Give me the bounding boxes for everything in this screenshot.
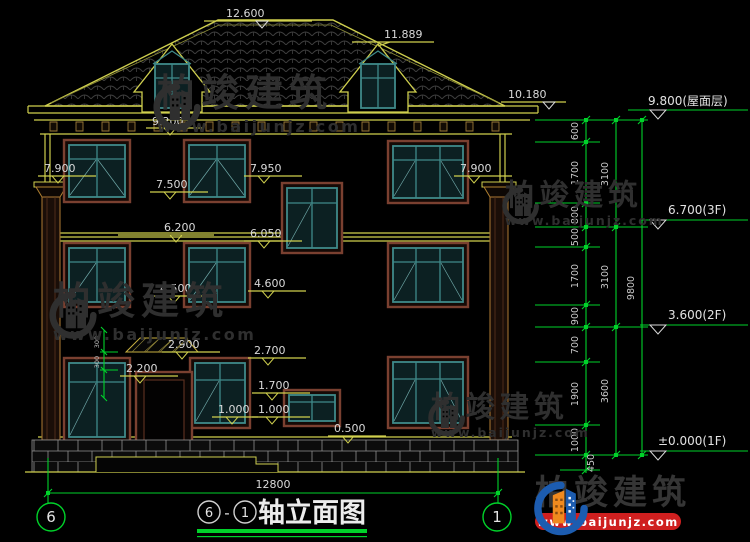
dim-label: 600: [570, 122, 581, 140]
dim-label: 3100: [600, 162, 611, 186]
right-dim-chain: 600 1700 800 500 1700 900 700 1900 1000 …: [535, 116, 648, 474]
dim-label: 1900: [570, 382, 581, 406]
axis-number: 6: [46, 508, 56, 526]
axis-number: 1: [492, 508, 502, 526]
dim-label: 1700: [570, 264, 581, 288]
window: [184, 243, 250, 307]
title-underline-thin: [197, 536, 367, 537]
dim-label: 1.700: [258, 379, 290, 392]
pilaster-right: [482, 182, 516, 440]
cornice-brackets: [50, 122, 499, 131]
dim-label: 11.889: [384, 28, 423, 41]
dim-label: 300: [93, 336, 101, 348]
dim-label: 800: [570, 206, 581, 224]
dim-label: 900: [570, 307, 581, 325]
level-flags: 9.800(屋面层) 6.700(3F) 3.600(2F) ±0.000(1F…: [628, 94, 748, 460]
dim-label: 12800: [256, 478, 291, 491]
stone-base: [25, 440, 525, 472]
dim-label: 1000: [570, 428, 581, 452]
dim-label: 7.900: [44, 162, 76, 175]
drawing-title: 6 - 1 轴立面图: [197, 497, 367, 537]
level-label: ±0.000(1F): [658, 434, 726, 448]
window: [64, 243, 130, 307]
level-label: 9.800(屋面层): [648, 94, 728, 108]
window: [284, 390, 340, 426]
dim-label: 300: [93, 356, 101, 368]
dim-label: 4.600: [254, 277, 286, 290]
window: [64, 358, 130, 442]
dim-label: 2.900: [168, 338, 200, 351]
dim-label: 3100: [600, 265, 611, 289]
title-separator: -: [224, 504, 229, 522]
window: [388, 243, 468, 307]
dim-label: 2.700: [254, 344, 286, 357]
dim-label: 7.500: [156, 178, 188, 191]
window: [388, 357, 468, 428]
window: [282, 183, 342, 253]
roof: [28, 20, 538, 134]
level-label: 3.600(2F): [668, 308, 726, 322]
dim-label: 450: [586, 454, 597, 472]
dim-label: 1700: [570, 161, 581, 185]
brand-block: 柏竣建筑 www.baijunjz.com: [528, 476, 691, 530]
dim-label: 1.000: [258, 403, 290, 416]
elevation-drawing: 12.600 11.889 10.180 9.200 7.900 7.950 7…: [0, 0, 750, 542]
title-axis-end: 1: [241, 506, 249, 521]
dim-label: 9.200: [152, 115, 184, 128]
dim-label: 2.200: [126, 362, 158, 375]
dim-label: 6.200: [164, 221, 196, 234]
dim-label: 10.180: [508, 88, 547, 101]
dim-label: 7.900: [460, 162, 492, 175]
title-text: 轴立面图: [258, 497, 366, 529]
dim-label: 3600: [600, 379, 611, 403]
window: [388, 141, 468, 203]
dim-label: 700: [570, 336, 581, 354]
dim-label: 1.000: [218, 403, 250, 416]
entry-steps: [96, 457, 278, 472]
window: [184, 140, 250, 202]
title-axis-start: 6: [205, 506, 213, 521]
level-label: 6.700(3F): [668, 203, 726, 217]
dim-label: 4.500: [160, 282, 192, 295]
dim-label: 6.050: [250, 227, 282, 240]
title-underline-thick: [197, 529, 367, 533]
dim-label: 9800: [626, 276, 637, 300]
dim-label: 0.500: [334, 422, 366, 435]
dim-label: 7.950: [250, 162, 282, 175]
dim-label: 12.600: [226, 7, 265, 20]
dim-label: 500: [570, 228, 581, 246]
cad-canvas: 12.600 11.889 10.180 9.200 7.900 7.950 7…: [0, 0, 750, 542]
